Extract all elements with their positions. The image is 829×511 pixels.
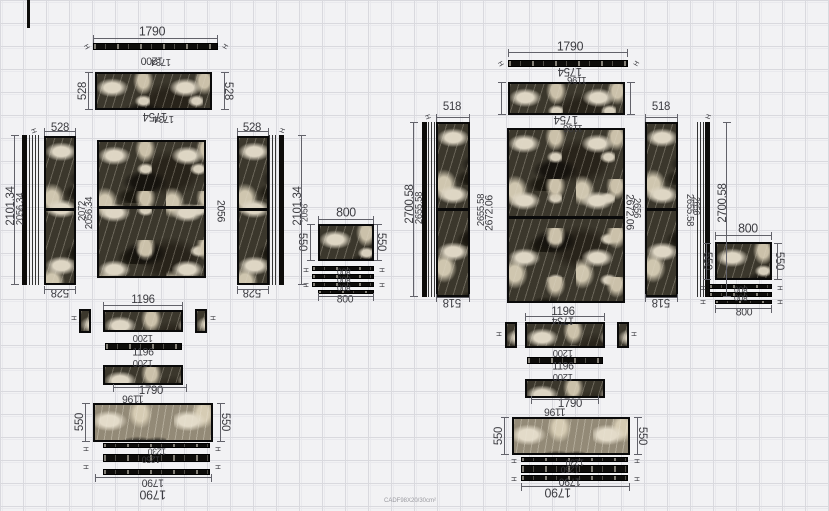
left-bottom-square-left[interactable] bbox=[79, 309, 91, 333]
dim-label: 550 bbox=[702, 252, 714, 270]
dimension-line bbox=[377, 224, 378, 261]
left-bottom-panel[interactable] bbox=[93, 403, 213, 442]
right-800-panel[interactable] bbox=[715, 242, 772, 280]
dim-label: 800 bbox=[337, 283, 350, 292]
dim-label: 800 bbox=[738, 222, 758, 235]
dim-label: 1200 bbox=[133, 332, 153, 342]
dimension-line bbox=[521, 486, 630, 487]
dimension-line bbox=[85, 403, 86, 442]
left-center-panel[interactable] bbox=[97, 140, 206, 278]
dim-label: 1196 bbox=[131, 293, 154, 305]
dim-end-marker: H bbox=[699, 300, 706, 305]
dim-label: 550 bbox=[774, 252, 786, 270]
dimension-line bbox=[501, 82, 502, 115]
dim-label: 1200 bbox=[133, 357, 153, 367]
dim-label: 1790 bbox=[140, 489, 166, 502]
dim-end-marker: H bbox=[776, 286, 783, 291]
dim-end-marker: H bbox=[82, 465, 89, 470]
dim-label: 518 bbox=[652, 100, 670, 112]
dim-label: 550 bbox=[297, 233, 309, 251]
dim-end-marker: H bbox=[378, 283, 385, 288]
left-edge-bar-right[interactable] bbox=[279, 135, 284, 285]
dimension-line bbox=[637, 417, 638, 455]
dimension-line bbox=[436, 117, 470, 118]
dim-end-marker: H bbox=[633, 459, 640, 464]
right-center-panel[interactable] bbox=[507, 128, 625, 303]
dim-end-marker: H bbox=[302, 268, 309, 273]
dimension-line bbox=[525, 316, 605, 317]
left-bottom-row-2[interactable] bbox=[103, 365, 183, 385]
right-bottom-square-left[interactable] bbox=[505, 322, 517, 348]
dimension-line bbox=[93, 38, 218, 39]
dimension-line bbox=[715, 235, 772, 236]
dim-label: 550 bbox=[220, 413, 232, 431]
dim-label: 1250 bbox=[142, 455, 160, 464]
dim-label: 550 bbox=[73, 413, 85, 431]
dimension-line bbox=[220, 403, 221, 442]
left-bottom-strip-3[interactable] bbox=[103, 469, 210, 475]
dim-label: 1196 bbox=[563, 122, 582, 132]
dim-label: 518 bbox=[652, 297, 670, 309]
right-bottom-panel[interactable] bbox=[512, 417, 630, 455]
dim-label: 518 bbox=[443, 100, 461, 112]
dim-end-marker: H bbox=[423, 114, 431, 121]
left-bottom-row-1[interactable] bbox=[103, 310, 183, 332]
dim-end-marker: H bbox=[705, 114, 713, 121]
dimension-line bbox=[318, 296, 374, 297]
left-bottom-square-right[interactable] bbox=[195, 309, 207, 333]
dim-label: 800 bbox=[736, 308, 753, 319]
right-side-panel-right-split-line bbox=[647, 208, 676, 211]
dimension-line bbox=[113, 387, 187, 388]
right-side-panel-left-split-line bbox=[438, 208, 468, 211]
dim-label: 800 bbox=[336, 206, 356, 219]
dim-label: 550 bbox=[492, 427, 504, 445]
dim-label: 1790 bbox=[545, 487, 571, 500]
dim-label: 1200 bbox=[553, 347, 573, 357]
dimension-line bbox=[310, 224, 311, 261]
dim-label: 518 bbox=[443, 297, 461, 309]
dimension-line bbox=[237, 131, 269, 132]
dim-label: 528 bbox=[76, 82, 88, 100]
dimension-line bbox=[645, 117, 678, 118]
dim-label: 2056.34 bbox=[16, 193, 26, 225]
right-center-panel-split-line bbox=[509, 216, 623, 219]
dimension-line bbox=[726, 122, 727, 297]
right-edge-lines-left[interactable] bbox=[428, 122, 435, 297]
dimension-line bbox=[318, 219, 374, 220]
right-top-panel[interactable] bbox=[508, 82, 625, 115]
dimension-line bbox=[224, 72, 225, 110]
dimension-line bbox=[88, 72, 89, 110]
dimension-line bbox=[95, 477, 212, 478]
left-800-panel[interactable] bbox=[318, 224, 374, 261]
dim-end-marker: H bbox=[630, 332, 637, 337]
left-side-panel-left-split-line bbox=[46, 208, 74, 211]
dim-label: 1196 bbox=[544, 406, 565, 417]
left-side-panel-right[interactable] bbox=[237, 136, 269, 285]
dim-label: 800 bbox=[734, 293, 747, 302]
dim-end-marker: H bbox=[633, 477, 640, 482]
dim-end-marker: H bbox=[209, 316, 216, 321]
dimension-line bbox=[44, 131, 76, 132]
dim-label: 1734 bbox=[151, 56, 171, 66]
dim-end-marker: H bbox=[495, 332, 502, 337]
dim-label: 1790 bbox=[139, 25, 165, 38]
corner-line[interactable] bbox=[27, 0, 30, 28]
dim-end-marker: H bbox=[214, 447, 221, 452]
dim-label: 2056.34 bbox=[85, 197, 95, 229]
cad-canvas[interactable]: CADF98X20/30cm² 179012001734528528175417… bbox=[0, 0, 829, 511]
right-bottom-square-right[interactable] bbox=[617, 322, 629, 348]
left-top-strip[interactable] bbox=[93, 43, 218, 50]
left-edge-lines-left[interactable] bbox=[29, 135, 40, 285]
dim-end-marker: H bbox=[378, 268, 385, 273]
dimension-line bbox=[301, 135, 302, 285]
dimension-line bbox=[237, 289, 269, 290]
dim-label: 1734 bbox=[154, 113, 174, 123]
dim-end-marker: H bbox=[699, 286, 706, 291]
dim-label: 1200 bbox=[553, 371, 573, 381]
dim-end-marker: H bbox=[776, 300, 783, 305]
dim-end-marker: H bbox=[222, 43, 230, 50]
dim-label: 2656 bbox=[692, 197, 701, 215]
dim-label: 550 bbox=[637, 427, 649, 445]
dimension-line bbox=[630, 82, 631, 115]
dim-end-marker: H bbox=[214, 465, 221, 470]
dimension-line bbox=[531, 399, 599, 400]
dimension-line bbox=[103, 305, 183, 306]
dimension-line bbox=[44, 289, 76, 290]
dim-end-marker: H bbox=[633, 60, 641, 67]
dimension-line bbox=[14, 135, 15, 285]
dim-label: 2672.06 bbox=[485, 195, 496, 231]
dimension-line bbox=[706, 243, 707, 280]
dimension-line bbox=[715, 308, 772, 309]
left-edge-lines-right[interactable] bbox=[269, 135, 278, 285]
watermark-label: CADF98X20/30cm² bbox=[384, 498, 436, 504]
dimension-line bbox=[504, 417, 505, 455]
dim-label: 1790 bbox=[557, 40, 583, 53]
dim-label: 1790 bbox=[142, 477, 164, 488]
dim-end-marker: H bbox=[510, 459, 517, 464]
right-side-panel-left[interactable] bbox=[436, 122, 470, 297]
dim-end-marker: H bbox=[510, 477, 517, 482]
dim-end-marker: H bbox=[82, 447, 89, 452]
dim-end-marker: H bbox=[279, 128, 287, 135]
dimension-line bbox=[508, 52, 628, 53]
dim-end-marker: H bbox=[29, 128, 37, 135]
dimension-line bbox=[436, 297, 470, 298]
dim-label: 1250 bbox=[561, 465, 579, 474]
dimension-line bbox=[645, 297, 678, 298]
dim-label: 2655.58 bbox=[415, 192, 425, 224]
dim-label: 2656 bbox=[631, 198, 641, 218]
dimension-line bbox=[413, 122, 414, 297]
dim-end-marker: H bbox=[82, 43, 90, 50]
left-side-panel-right-split-line bbox=[239, 208, 267, 211]
dimension-line bbox=[777, 243, 778, 280]
dim-label: 2056 bbox=[215, 200, 226, 222]
dim-end-marker: H bbox=[70, 316, 77, 321]
left-center-panel-split-line bbox=[99, 206, 204, 209]
dim-end-marker: H bbox=[496, 60, 504, 67]
dim-label: 1196 bbox=[122, 393, 143, 404]
left-top-panel[interactable] bbox=[95, 72, 212, 110]
right-side-panel-right[interactable] bbox=[645, 122, 678, 297]
dim-label: 1196 bbox=[567, 74, 586, 84]
left-side-panel-left[interactable] bbox=[44, 136, 76, 285]
